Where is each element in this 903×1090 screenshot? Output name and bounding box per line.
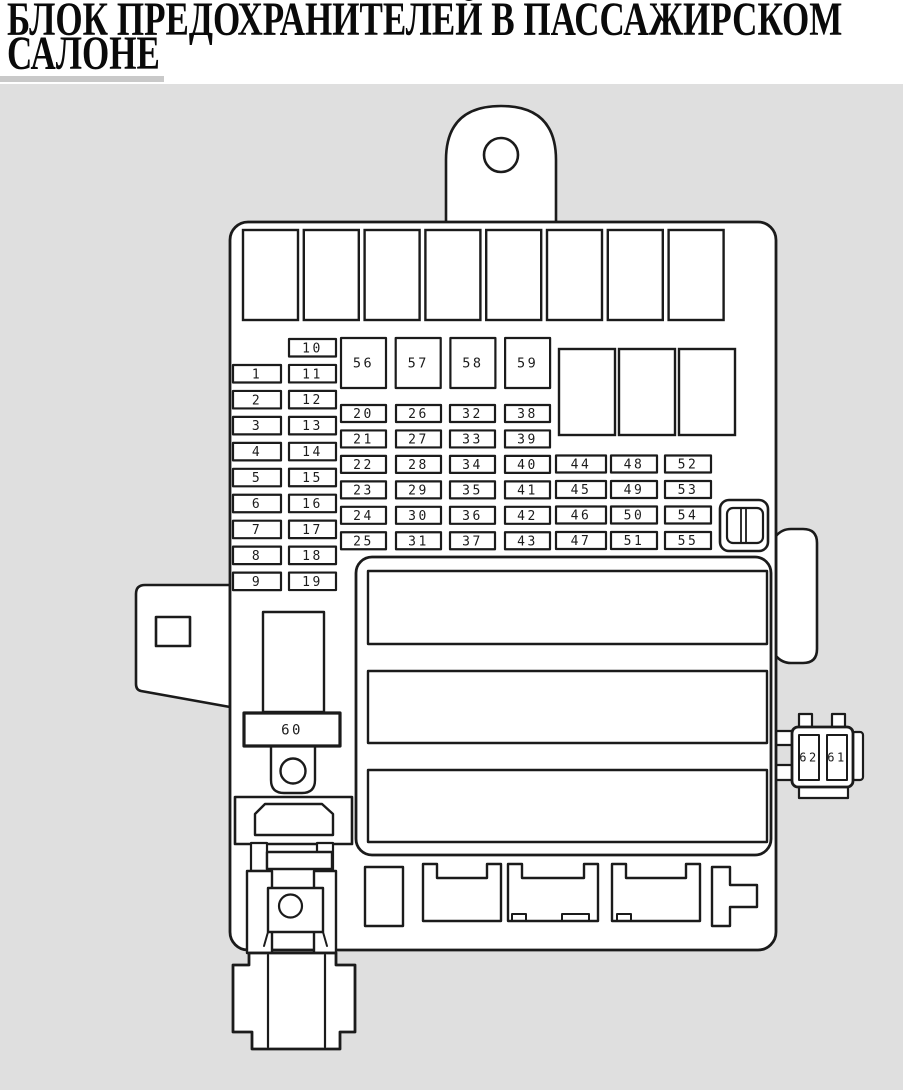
fuse-1: 1 [233,365,281,383]
fuse-52: 52 [665,456,711,473]
fuse-13: 13 [289,417,336,435]
side-fuse-61: 61 [827,735,847,780]
fuse-34: 34 [450,456,495,473]
fuse-33: 33 [450,430,495,447]
fuse-label: 22 [353,458,374,473]
fuse-label: 60 [281,722,303,738]
fuse-label: 61 [827,751,846,765]
fuse-59: 59 [505,338,550,388]
fuse-label: 10 [302,341,323,356]
fuse-55: 55 [665,532,711,549]
fuse-47: 47 [556,532,606,549]
fuse-53: 53 [665,481,711,498]
fuse-box-diagram: 1234567891011121314151617181956575859202… [0,84,903,1090]
fuse-label: 38 [517,407,538,422]
fuse-label: 29 [408,483,429,498]
fuse-43: 43 [505,532,550,549]
right-slot-3 [679,349,735,435]
fuse-label: 17 [302,523,323,538]
fuse-29: 29 [396,481,441,498]
fuse-label: 28 [408,458,429,473]
fuse-41: 41 [505,481,550,498]
fuse-6: 6 [233,495,281,513]
fuse-37: 37 [450,532,495,549]
side-connector-bottom-tab [799,787,848,798]
title-underline [0,76,164,82]
page-title-line2: САЛОНЕ [7,37,661,71]
fuse-label: 58 [462,356,483,372]
fuse-label: 5 [252,471,262,486]
fuse-20: 20 [341,405,386,422]
fuse-label: 48 [624,458,645,473]
socket-opening [255,804,333,835]
connector-panel [356,557,771,855]
fuse-label: 41 [517,483,538,498]
fuse-36: 36 [450,507,495,524]
fuse-38: 38 [505,405,550,422]
fuse-label: 47 [571,534,592,549]
fuse-56: 56 [341,338,386,388]
relay-slot-1 [243,230,298,320]
fuse-label: 50 [624,509,645,524]
connector-panel-slot-2 [368,671,767,743]
fuse-14: 14 [289,443,336,461]
fuse-57: 57 [396,338,441,388]
fuse-label: 31 [408,534,429,549]
fuse-label: 25 [353,534,374,549]
fuse-28: 28 [396,456,441,473]
fuse-51: 51 [611,532,657,549]
relay-slot-2 [304,230,359,320]
fuse-26: 26 [396,405,441,422]
relay-60: 60 [244,713,340,746]
fuse-8: 8 [233,547,281,565]
fuse-40: 40 [505,456,550,473]
fuse-50: 50 [611,507,657,524]
fuse-label: 56 [353,356,374,372]
fuse-label: 6 [252,497,262,512]
side-connector-top-tab [799,714,812,727]
fuse-10: 10 [289,339,336,357]
fuse-19: 19 [289,573,336,591]
fuse-label: 44 [571,458,592,473]
fuse-label: 12 [302,393,323,408]
relay-slot-3 [365,230,420,320]
relay-60-slot [263,612,324,712]
fuse-label: 39 [517,433,538,448]
fuse-9: 9 [233,573,281,591]
fuse-label: 62 [799,751,818,765]
fuse-label: 52 [678,458,699,473]
fuse-22: 22 [341,456,386,473]
fuse-label: 40 [517,458,538,473]
fuse-27: 27 [396,430,441,447]
page-title: БЛОК ПРЕДОХРАНИТЕЛЕЙ В ПАССАЖИРСКОМ САЛО… [0,0,903,71]
fuse-label: 21 [353,433,374,448]
relay-60-hole [281,759,306,784]
fuse-label: 8 [252,549,262,564]
fuse-46: 46 [556,507,606,524]
fuse-label: 9 [252,575,262,590]
connector-panel-slot-1 [368,571,767,644]
fuse-48: 48 [611,456,657,473]
relay-slot-6 [547,230,602,320]
fuse-30: 30 [396,507,441,524]
fuse-3: 3 [233,417,281,435]
relay-slot-8 [669,230,724,320]
bottom-socket-small [365,867,403,926]
fuse-18: 18 [289,547,336,565]
fuse-16: 16 [289,495,336,513]
left-bracket-window [156,617,190,646]
fuse-label: 43 [517,534,538,549]
fuse-label: 57 [408,356,429,372]
fuse-24: 24 [341,507,386,524]
fuse-label: 35 [462,483,483,498]
relay-slot-4 [425,230,480,320]
latch-clip [720,500,768,551]
left-bracket [136,585,230,707]
fuse-label: 23 [353,483,374,498]
mounting-tab [446,106,556,226]
fuse-label: 42 [517,509,538,524]
fuse-label: 55 [678,534,699,549]
fuse-label: 37 [462,534,483,549]
fuse-label: 26 [408,407,429,422]
fuse-label: 4 [252,445,262,460]
fuse-label: 51 [624,534,645,549]
fuse-label: 3 [252,419,262,434]
fuse-25: 25 [341,532,386,549]
fuse-49: 49 [611,481,657,498]
fuse-label: 34 [462,458,483,473]
fuse-label: 1 [252,367,262,382]
fuse-32: 32 [450,405,495,422]
fuse-label: 33 [462,433,483,448]
fuse-11: 11 [289,365,336,383]
fuse-label: 13 [302,419,323,434]
fuse-label: 54 [678,509,699,524]
fuse-label: 36 [462,509,483,524]
mounting-hole [484,138,518,172]
fuse-35: 35 [450,481,495,498]
fuse-label: 7 [252,523,262,538]
side-fuse-62: 62 [799,735,819,780]
fuse-31: 31 [396,532,441,549]
fuse-label: 59 [517,356,538,372]
fuse-label: 30 [408,509,429,524]
fuse-label: 46 [571,509,592,524]
fuse-label: 16 [302,497,323,512]
fuse-5: 5 [233,469,281,487]
fuse-label: 45 [571,483,592,498]
fuse-23: 23 [341,481,386,498]
fuse-label: 32 [462,407,483,422]
fuse-label: 20 [353,407,374,422]
relay-slot-5 [486,230,541,320]
fuse-12: 12 [289,391,336,409]
fuse-45: 45 [556,481,606,498]
fuse-label: 49 [624,483,645,498]
fuse-39: 39 [505,430,550,447]
fuse-17: 17 [289,521,336,539]
fuse-4: 4 [233,443,281,461]
right-slot-2 [619,349,675,435]
right-slot-1 [559,349,615,435]
fuse-42: 42 [505,507,550,524]
fuse-7: 7 [233,521,281,539]
fuse-label: 15 [302,471,323,486]
bottom-connector-flare [233,953,355,1049]
fuse-label: 53 [678,483,699,498]
right-side-tab [776,529,817,663]
fuse-label: 24 [353,509,374,524]
fuse-label: 2 [252,393,262,408]
bottom-connector-hole [279,895,302,918]
side-connector-top-tab [832,714,845,727]
fuse-label: 14 [302,445,323,460]
fuse-54: 54 [665,507,711,524]
fuse-label: 27 [408,433,429,448]
fuse-21: 21 [341,430,386,447]
fuse-2: 2 [233,391,281,409]
connector-panel-slot-3 [368,770,767,842]
page-header: БЛОК ПРЕДОХРАНИТЕЛЕЙ В ПАССАЖИРСКОМ САЛО… [0,0,903,84]
fuse-15: 15 [289,469,336,487]
fuse-58: 58 [450,338,495,388]
fuse-label: 19 [302,575,323,590]
relay-slot-7 [608,230,663,320]
fuse-label: 11 [302,367,323,382]
fuse-label: 18 [302,549,323,564]
fuse-44: 44 [556,456,606,473]
